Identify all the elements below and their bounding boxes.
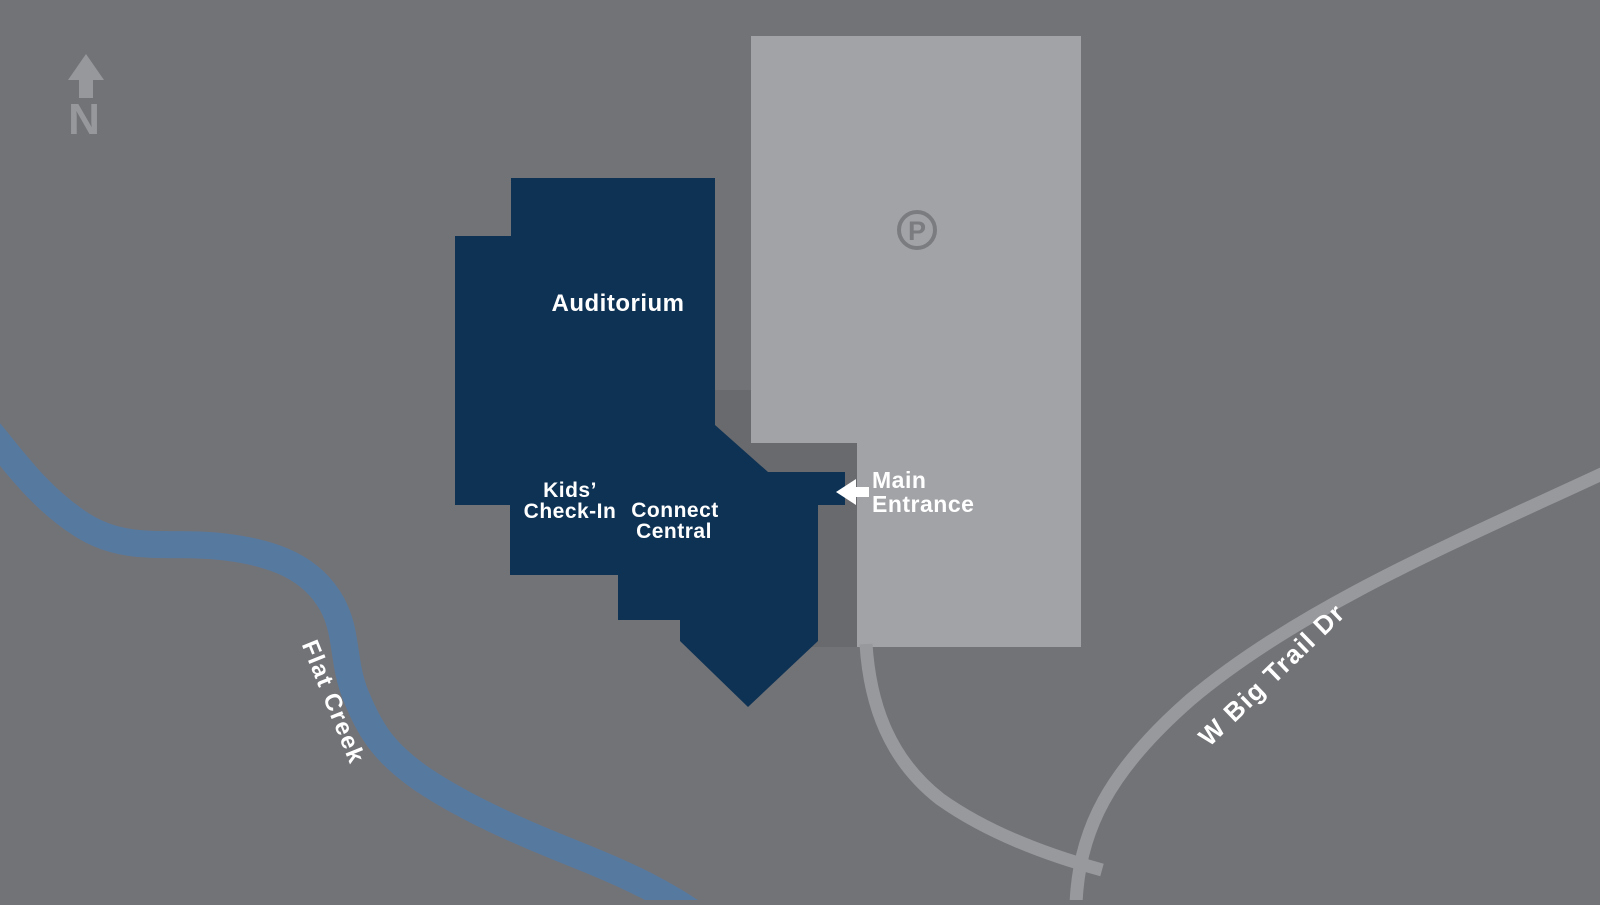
main-entrance-label-line1: Main — [872, 467, 926, 493]
connect-central-label-line2: Central — [636, 520, 712, 543]
parking-icon-letter: P — [908, 216, 926, 246]
campus-map: Auditorium Kids’ Check-In Connect Centra… — [0, 0, 1600, 900]
auditorium-label: Auditorium — [552, 290, 685, 317]
connect-central-label-line1: Connect — [631, 499, 719, 522]
kids-checkin-label-line2: Check-In — [524, 500, 617, 523]
main-entrance-label-line2: Entrance — [872, 491, 974, 517]
kids-checkin-label-line1: Kids’ — [543, 479, 597, 502]
north-label: N — [68, 95, 100, 144]
